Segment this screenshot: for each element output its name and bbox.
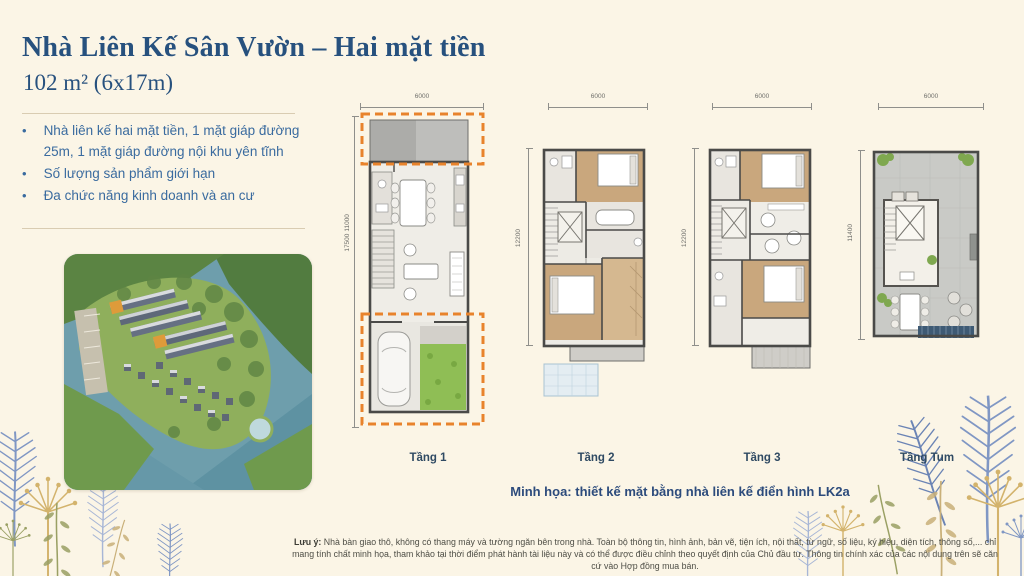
- feature-text: Nhà liên kế hai mặt tiền, 1 mặt giáp đườ…: [44, 121, 322, 163]
- floor-label: Tầng Tum: [870, 452, 984, 464]
- feature-text: Số lượng sản phẩm giới hạn: [44, 164, 216, 185]
- dimension-top: 6000: [360, 94, 484, 108]
- feature-item: • Đa chức năng kinh doanh và an cư: [22, 186, 322, 207]
- feature-item: • Số lượng sản phẩm giới hạn: [22, 164, 322, 185]
- dimension-top: 6000: [548, 94, 648, 108]
- disclaimer-text: Nhà bàn giao thô, không có thang máy và …: [292, 537, 998, 571]
- dimension-value: 6000: [924, 94, 938, 101]
- plans-caption: Minh họa: thiết kế mặt bằng nhà liên kế …: [420, 484, 940, 499]
- brochure-slide: Nhà Liên Kế Sân Vườn – Hai mặt tiền 102 …: [0, 0, 1024, 576]
- dimension-value: 6000: [591, 94, 605, 101]
- dimension-value: 6000: [755, 94, 769, 101]
- dimension-left: 12200: [515, 229, 523, 247]
- divider-bottom: [22, 228, 305, 229]
- feature-list: • Nhà liên kế hai mặt tiền, 1 mặt giáp đ…: [22, 121, 322, 208]
- feature-item: • Nhà liên kế hai mặt tiền, 1 mặt giáp đ…: [22, 121, 322, 163]
- dimension-left: 11400: [847, 224, 855, 242]
- floor-plan-1: 6000 17500 11000: [350, 94, 500, 474]
- floor-label: Tầng 1: [358, 452, 498, 464]
- floor-plan-3: 6000 12200: [682, 94, 826, 474]
- disclaimer: Lưu ý: Nhà bàn giao thô, không có thang …: [287, 536, 1003, 572]
- floor-label: Tầng 2: [540, 452, 652, 464]
- divider-top: [22, 113, 295, 114]
- page-title: Nhà Liên Kế Sân Vườn – Hai mặt tiền: [22, 32, 582, 64]
- aerial-masterplan-image: [64, 254, 312, 490]
- dimension-top: 6000: [712, 94, 812, 108]
- floor-plan-4-drawing: [870, 148, 984, 348]
- dimension-value: 12200: [515, 229, 523, 247]
- floor-plan-1-drawing: [358, 112, 498, 430]
- feature-text: Đa chức năng kinh doanh và an cư: [44, 186, 255, 207]
- bullet-icon: •: [22, 164, 27, 185]
- bullet-icon: •: [22, 121, 27, 163]
- dimension-left: 17500 11000: [344, 214, 352, 252]
- dimension-value: 12200: [681, 229, 689, 247]
- dimension-value: 11000: [344, 214, 352, 232]
- dimension-value: 6000: [415, 94, 429, 101]
- floor-label: Tầng 3: [706, 452, 818, 464]
- floor-plan-4: 6000 11400: [848, 94, 992, 474]
- dimension-left: 12200: [681, 229, 689, 247]
- floor-plan-2: 6000 12200: [516, 94, 660, 474]
- dimension-value: 17500: [344, 234, 352, 252]
- bullet-icon: •: [22, 186, 27, 207]
- floor-plan-3-drawing: [706, 146, 818, 398]
- dimension-value: 11400: [847, 224, 855, 242]
- page-subtitle: 102 m² (6x17m): [23, 70, 173, 96]
- floor-plan-2-drawing: [540, 146, 652, 398]
- disclaimer-label: Lưu ý:: [294, 537, 321, 547]
- dimension-top: 6000: [878, 94, 984, 108]
